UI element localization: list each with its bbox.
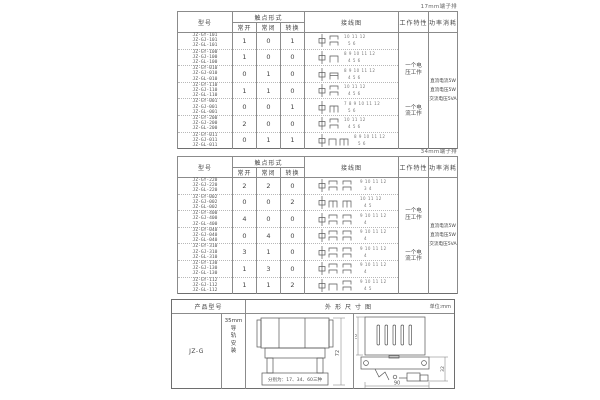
terminal-numbers-top: 8 9 10 11 12 [344,69,375,73]
co-count: 0 [281,227,305,244]
wiring-cell: 10 11 124 5 [305,196,398,209]
relay-diagram-icon [317,34,341,47]
mounting-note: 35mm 导 轨 安 装 [222,314,246,389]
table1-tag-label: 17mm端子排 [337,2,457,10]
nc-count: 0 [257,33,281,50]
wiring-cell: 9 10 11 124 [305,229,398,242]
no-count: 1 [233,261,257,278]
nc-count: 0 [257,49,281,66]
nc-count: 0 [257,194,281,211]
table-row: JZ-GY-220JZ-GJ-220JZ-GL-220 2 2 0 9 10 1… [178,178,458,195]
spec-table-17mm: 型号 触点形式 接线图 工作特性 功率消耗 常开 常闭 转换 JZ-GY-101… [177,11,458,149]
co-count: 0 [281,82,305,99]
terminal-numbers-top: 10 11 12 [344,35,366,39]
col-header-wiring: 接线图 [305,12,399,33]
power-consumption-cell: 直流电流5W直流电压5W交流电压5VA [429,180,457,292]
co-count: 0 [281,66,305,83]
wiring-cell: 10 11 124 5 6 [305,117,398,130]
co-count: 2 [281,194,305,211]
outline-drawing-header: 外形尺寸图 单位:mm [246,300,454,313]
col-header-contact-form: 触点形式 [233,12,305,23]
front-view-caption: 分别为：17、34、60三种 [267,376,322,383]
terminal-numbers-top: 10 11 12 [344,85,366,89]
model-list: JZ-GY-011JZ-GJ-011JZ-GL-011 [178,133,232,149]
wiring-cell: 7 8 9 10 11 125 6 [305,101,398,114]
no-count: 1 [233,49,257,66]
co-count: 0 [281,178,305,195]
no-count: 2 [233,178,257,195]
wiring-cell: 8 9 10 11 125 6 [305,134,398,147]
relay-diagram-icon [317,229,357,242]
nc-count: 2 [257,178,281,195]
col-header-working: 工作特性 [399,12,429,33]
terminal-numbers-bottom: 4 [360,254,387,258]
wiring-cell: 9 10 11 124 5 [305,279,398,292]
terminal-numbers-bottom: 4 [360,221,387,225]
nc-count: 0 [257,116,281,133]
relay-diagram-icon [317,213,357,226]
terminal-numbers-bottom: 4 5 6 [344,92,366,96]
terminal-numbers-bottom: 4 [360,270,387,274]
nc-count: 3 [257,261,281,278]
co-count: 0 [281,116,305,133]
wiring-cell: 8 9 10 11 124 5 6 [305,68,398,81]
relay-diagram-icon [317,134,351,147]
terminal-numbers-bottom: 5 6 [354,142,385,146]
model-list: JZ-GY-400JZ-GJ-400JZ-GL-400 [178,211,232,227]
terminal-numbers-top: 10 11 12 [344,118,366,122]
no-count: 0 [233,66,257,83]
front-height-dim-label: 72 [335,349,341,355]
terminal-numbers-bottom: 5 6 [344,109,380,113]
wiring-cell: 9 10 11 124 [305,246,398,259]
table-row: JZ-GY-101JZ-GJ-101JZ-GL-101 1 0 1 10 11 … [178,33,458,50]
col-header-co: 转换 [281,168,305,178]
model-list: JZ-GY-100JZ-GJ-100JZ-GL-100 [178,50,232,66]
unit-label: 单位:mm [430,303,451,310]
model-list: JZ-GY-310JZ-GJ-310JZ-GL-310 [178,244,232,260]
co-count: 0 [281,261,305,278]
relay-diagram-icon [317,101,341,114]
model-list: JZ-GY-220JZ-GJ-220JZ-GL-220 [178,178,232,194]
relay-diagram-icon [317,84,341,97]
col-header-no: 常开 [233,168,257,178]
co-count: 0 [281,244,305,261]
no-count: 0 [233,227,257,244]
terminal-numbers-top: 8 9 10 11 12 [344,52,375,56]
co-count: 1 [281,33,305,50]
terminal-numbers-top: 8 9 10 11 12 [354,135,385,139]
model-list: JZ-GY-040JZ-GJ-040JZ-GL-040 [178,228,232,244]
terminal-numbers-top: 9 10 11 12 [360,180,387,184]
front-view-drawing: 分别为：17、34、60三种 72 [249,315,351,389]
terminal-numbers-bottom: 4 5 6 [344,59,375,63]
relay-diagram-icon [317,196,357,209]
model-list: JZ-GY-001JZ-GJ-001JZ-GL-001 [178,99,232,115]
nc-count: 1 [257,66,281,83]
product-model-value: JZ-G [172,314,222,389]
wiring-cell: 8 9 10 11 124 5 6 [305,51,398,64]
terminal-numbers-bottom: 4 5 [360,287,387,291]
model-list: JZ-GY-200JZ-GJ-200JZ-GL-200 [178,116,232,132]
model-list: JZ-GY-101JZ-GJ-101JZ-GL-101 [178,33,232,49]
model-list: JZ-GY-112JZ-GJ-112JZ-GL-112 [178,278,232,294]
dimension-table-header: 产品型号 外形尺寸图 单位:mm [172,300,454,314]
terminal-numbers-top: 9 10 11 12 [360,280,387,284]
side-view-drawing: 70 32 90 [355,315,453,389]
terminal-numbers-bottom: 5 6 [344,42,366,46]
wiring-cell: 9 10 11 123 4 [305,179,398,192]
co-count: 0 [281,211,305,228]
model-list: JZ-GY-010JZ-GJ-010JZ-GL-010 [178,66,232,82]
relay-diagram-icon [317,117,341,130]
terminal-numbers-top: 9 10 11 12 [360,247,387,251]
terminal-numbers-top: 9 10 11 12 [360,214,387,218]
no-count: 0 [233,194,257,211]
dimension-table: 产品型号 外形尺寸图 单位:mm JZ-G 35mm 导 轨 安 装 分别为：1… [171,299,455,389]
relay-diagram-icon [317,51,341,64]
model-list: JZ-GY-002JZ-GJ-002JZ-GL-002 [178,195,232,211]
terminal-numbers-top: 9 10 11 12 [360,230,387,234]
terminal-numbers-bottom: 4 5 [360,204,382,208]
relay-diagram-icon [317,262,357,275]
col-header-power: 功率消耗 [429,157,458,178]
col-header-model: 型号 [178,157,233,178]
terminal-numbers-top: 10 11 12 [360,197,382,201]
col-header-power: 功率消耗 [429,12,458,33]
nc-count: 1 [257,82,281,99]
col-header-working: 工作特性 [399,157,429,178]
relay-diagram-icon [317,279,357,292]
relay-diagram-icon [317,68,341,81]
no-count: 0 [233,99,257,116]
working-characteristic-cell: 一个电压工作 一个电流工作 [399,35,428,147]
no-count: 3 [233,244,257,261]
terminal-numbers-bottom: 4 5 6 [344,76,375,80]
col-header-nc: 常闭 [257,168,281,178]
nc-count: 0 [257,99,281,116]
model-list: JZ-GY-110JZ-GJ-110JZ-GL-110 [178,83,232,99]
side-depth-dim-label: 32 [440,366,446,372]
product-model-header: 产品型号 [172,300,246,313]
col-header-contact-form: 触点形式 [233,157,305,168]
wiring-cell: 10 11 125 6 [305,34,398,47]
side-width-dim-label: 90 [394,380,400,386]
power-consumption-cell: 直流电流5W直流电压5W交流电压5VA [429,35,457,147]
terminal-numbers-bottom: 3 4 [360,187,387,191]
working-characteristic-cell: 一个电压工作 一个电流工作 [399,180,428,292]
nc-count: 1 [257,132,281,149]
co-count: 1 [281,99,305,116]
no-count: 1 [233,277,257,294]
wiring-cell: 9 10 11 124 [305,213,398,226]
col-header-wiring: 接线图 [305,157,399,178]
relay-diagram-icon [317,179,357,192]
spec-table-34mm: 型号 触点形式 接线图 工作特性 功率消耗 常开 常闭 转换 JZ-GY-220… [177,156,458,294]
nc-count: 1 [257,244,281,261]
nc-count: 0 [257,211,281,228]
co-count: 2 [281,277,305,294]
model-list: JZ-GY-130JZ-GJ-130JZ-GL-130 [178,261,232,277]
wiring-cell: 10 11 124 5 6 [305,84,398,97]
col-header-no: 常开 [233,23,257,33]
front-view-cell: 分别为：17、34、60三种 72 [246,314,354,389]
dimension-table-body: JZ-G 35mm 导 轨 安 装 分别为：17、34、60三种 72 [172,314,454,389]
col-header-co: 转换 [281,23,305,33]
terminal-numbers-bottom: 4 5 6 [344,125,366,129]
no-count: 1 [233,33,257,50]
col-header-model: 型号 [178,12,233,33]
nc-count: 4 [257,227,281,244]
wiring-cell: 9 10 11 124 [305,262,398,275]
no-count: 0 [233,132,257,149]
terminal-numbers-bottom: 4 [360,237,387,241]
no-count: 1 [233,82,257,99]
side-height-dim-label: 70 [355,334,359,340]
co-count: 1 [281,132,305,149]
col-header-nc: 常闭 [257,23,281,33]
co-count: 0 [281,49,305,66]
side-view-cell: 70 32 90 [354,314,454,389]
no-count: 2 [233,116,257,133]
relay-diagram-icon [317,246,357,259]
no-count: 4 [233,211,257,228]
terminal-numbers-top: 7 8 9 10 11 12 [344,102,380,106]
nc-count: 1 [257,277,281,294]
terminal-numbers-top: 9 10 11 12 [360,263,387,267]
